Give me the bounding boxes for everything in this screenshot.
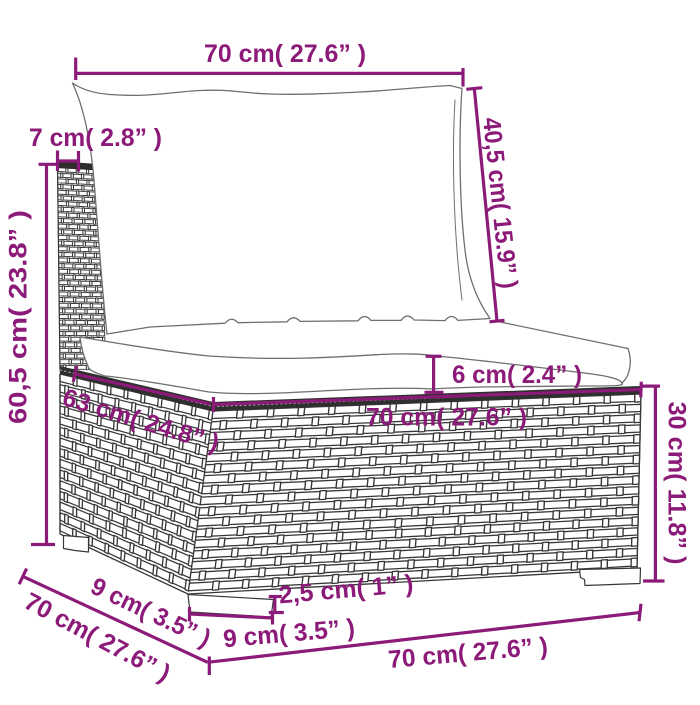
svg-text:60,5 cm( 23.8” ): 60,5 cm( 23.8” ) [5, 210, 33, 424]
svg-text:70 cm( 27.6” ): 70 cm( 27.6” ) [366, 404, 527, 432]
svg-text:30 cm( 11.8” ): 30 cm( 11.8” ) [662, 402, 690, 565]
svg-text:6 cm( 2.4” ): 6 cm( 2.4” ) [452, 361, 582, 389]
svg-text:70 cm( 27.6” ): 70 cm( 27.6” ) [204, 40, 366, 68]
svg-text:7 cm( 2.8” ): 7 cm( 2.8” ) [29, 124, 162, 152]
